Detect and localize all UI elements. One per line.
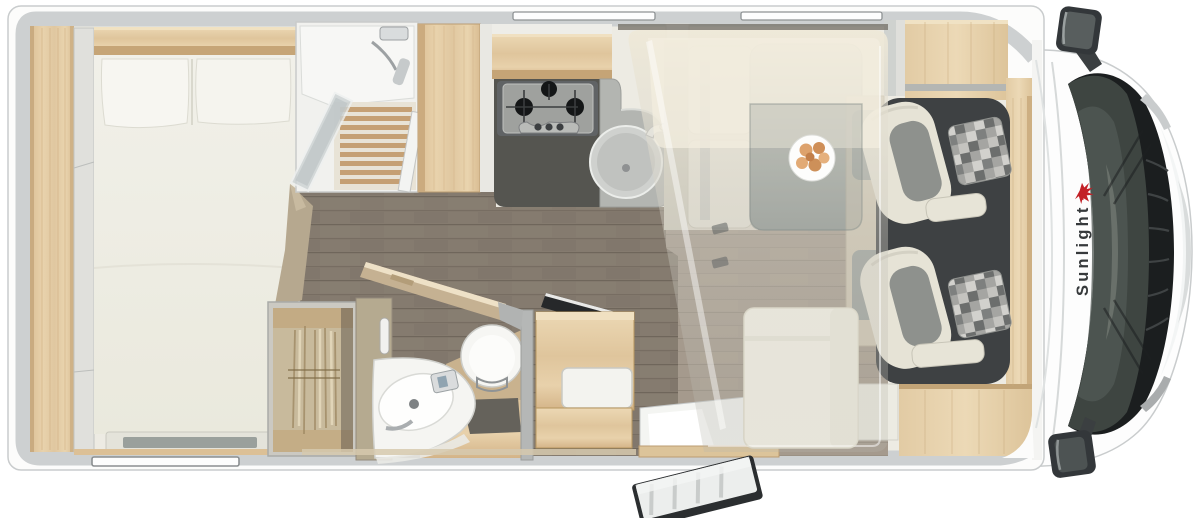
svg-text:Sunlight: Sunlight [1074, 204, 1092, 296]
